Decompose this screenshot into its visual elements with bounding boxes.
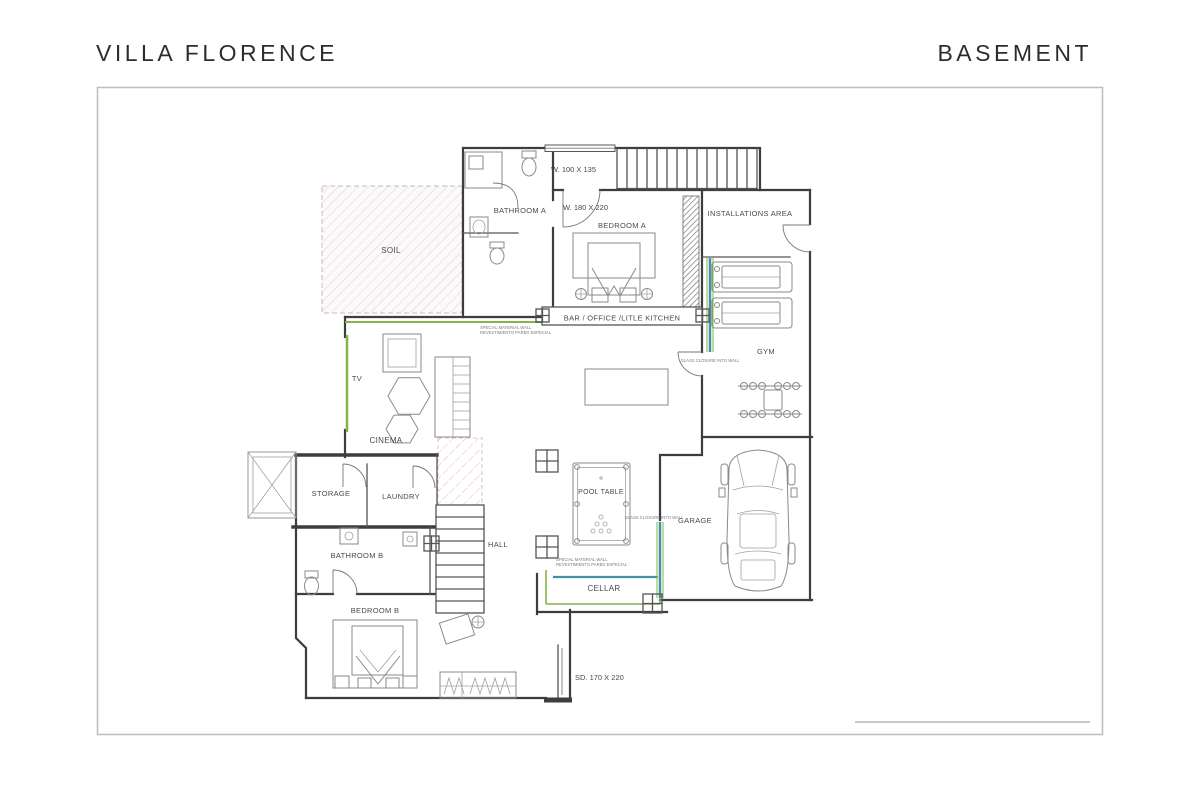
- room-label-laundry: LAUNDRY: [382, 492, 420, 501]
- room-label-installations: INSTALLATIONS AREA: [708, 209, 793, 218]
- window-icon: [545, 145, 615, 152]
- room-label-hall: HALL: [488, 540, 508, 549]
- room-label-pool-table: POOL TABLE: [578, 489, 624, 496]
- note-special-wall-1-l2: REVESTIMIENTO PARED ESPECIAL: [480, 330, 552, 335]
- dim-window-a: W. 100 X 135: [551, 165, 596, 174]
- room-label-tv: TV: [352, 374, 362, 383]
- room-label-storage: STORAGE: [312, 489, 351, 498]
- staircase-hall: [436, 505, 484, 613]
- room-label-bathroom-b: BATHROOM B: [331, 551, 384, 560]
- drawing-sheet: VILLA FLORENCE BASEMENT: [0, 0, 1200, 800]
- note-glass-closure-gym: GLASS CLOSURE INTO WALL: [681, 358, 741, 363]
- room-label-bedroom-a: BEDROOM A: [598, 221, 646, 230]
- floor-plan: SOIL BATHROOM A BEDROOM A INSTALLATIONS …: [0, 0, 1200, 800]
- note-special-wall-2-l2: REVESTIMIENTO PARED ESPECIAL: [556, 562, 628, 567]
- room-label-bedroom-b: BEDROOM B: [351, 606, 400, 615]
- insulated-wall: [683, 196, 699, 308]
- dim-sliding-door: SD. 170 X 220: [575, 673, 624, 682]
- dim-door-a: W. 180 X 220: [563, 203, 608, 212]
- room-label-cellar: CELLAR: [588, 584, 621, 593]
- room-label-cinema: CINEMA: [370, 436, 403, 445]
- room-label-soil: SOIL: [381, 246, 401, 255]
- plan-frame: [98, 88, 1103, 735]
- room-label-bar-office: BAR / OFFICE /LITLE KITCHEN: [564, 314, 680, 323]
- room-label-gym: GYM: [757, 347, 775, 356]
- note-glass-closure-garage: GLASS CLOSURE INTO WALL: [625, 515, 685, 520]
- room-label-bathroom-a: BATHROOM A: [494, 206, 546, 215]
